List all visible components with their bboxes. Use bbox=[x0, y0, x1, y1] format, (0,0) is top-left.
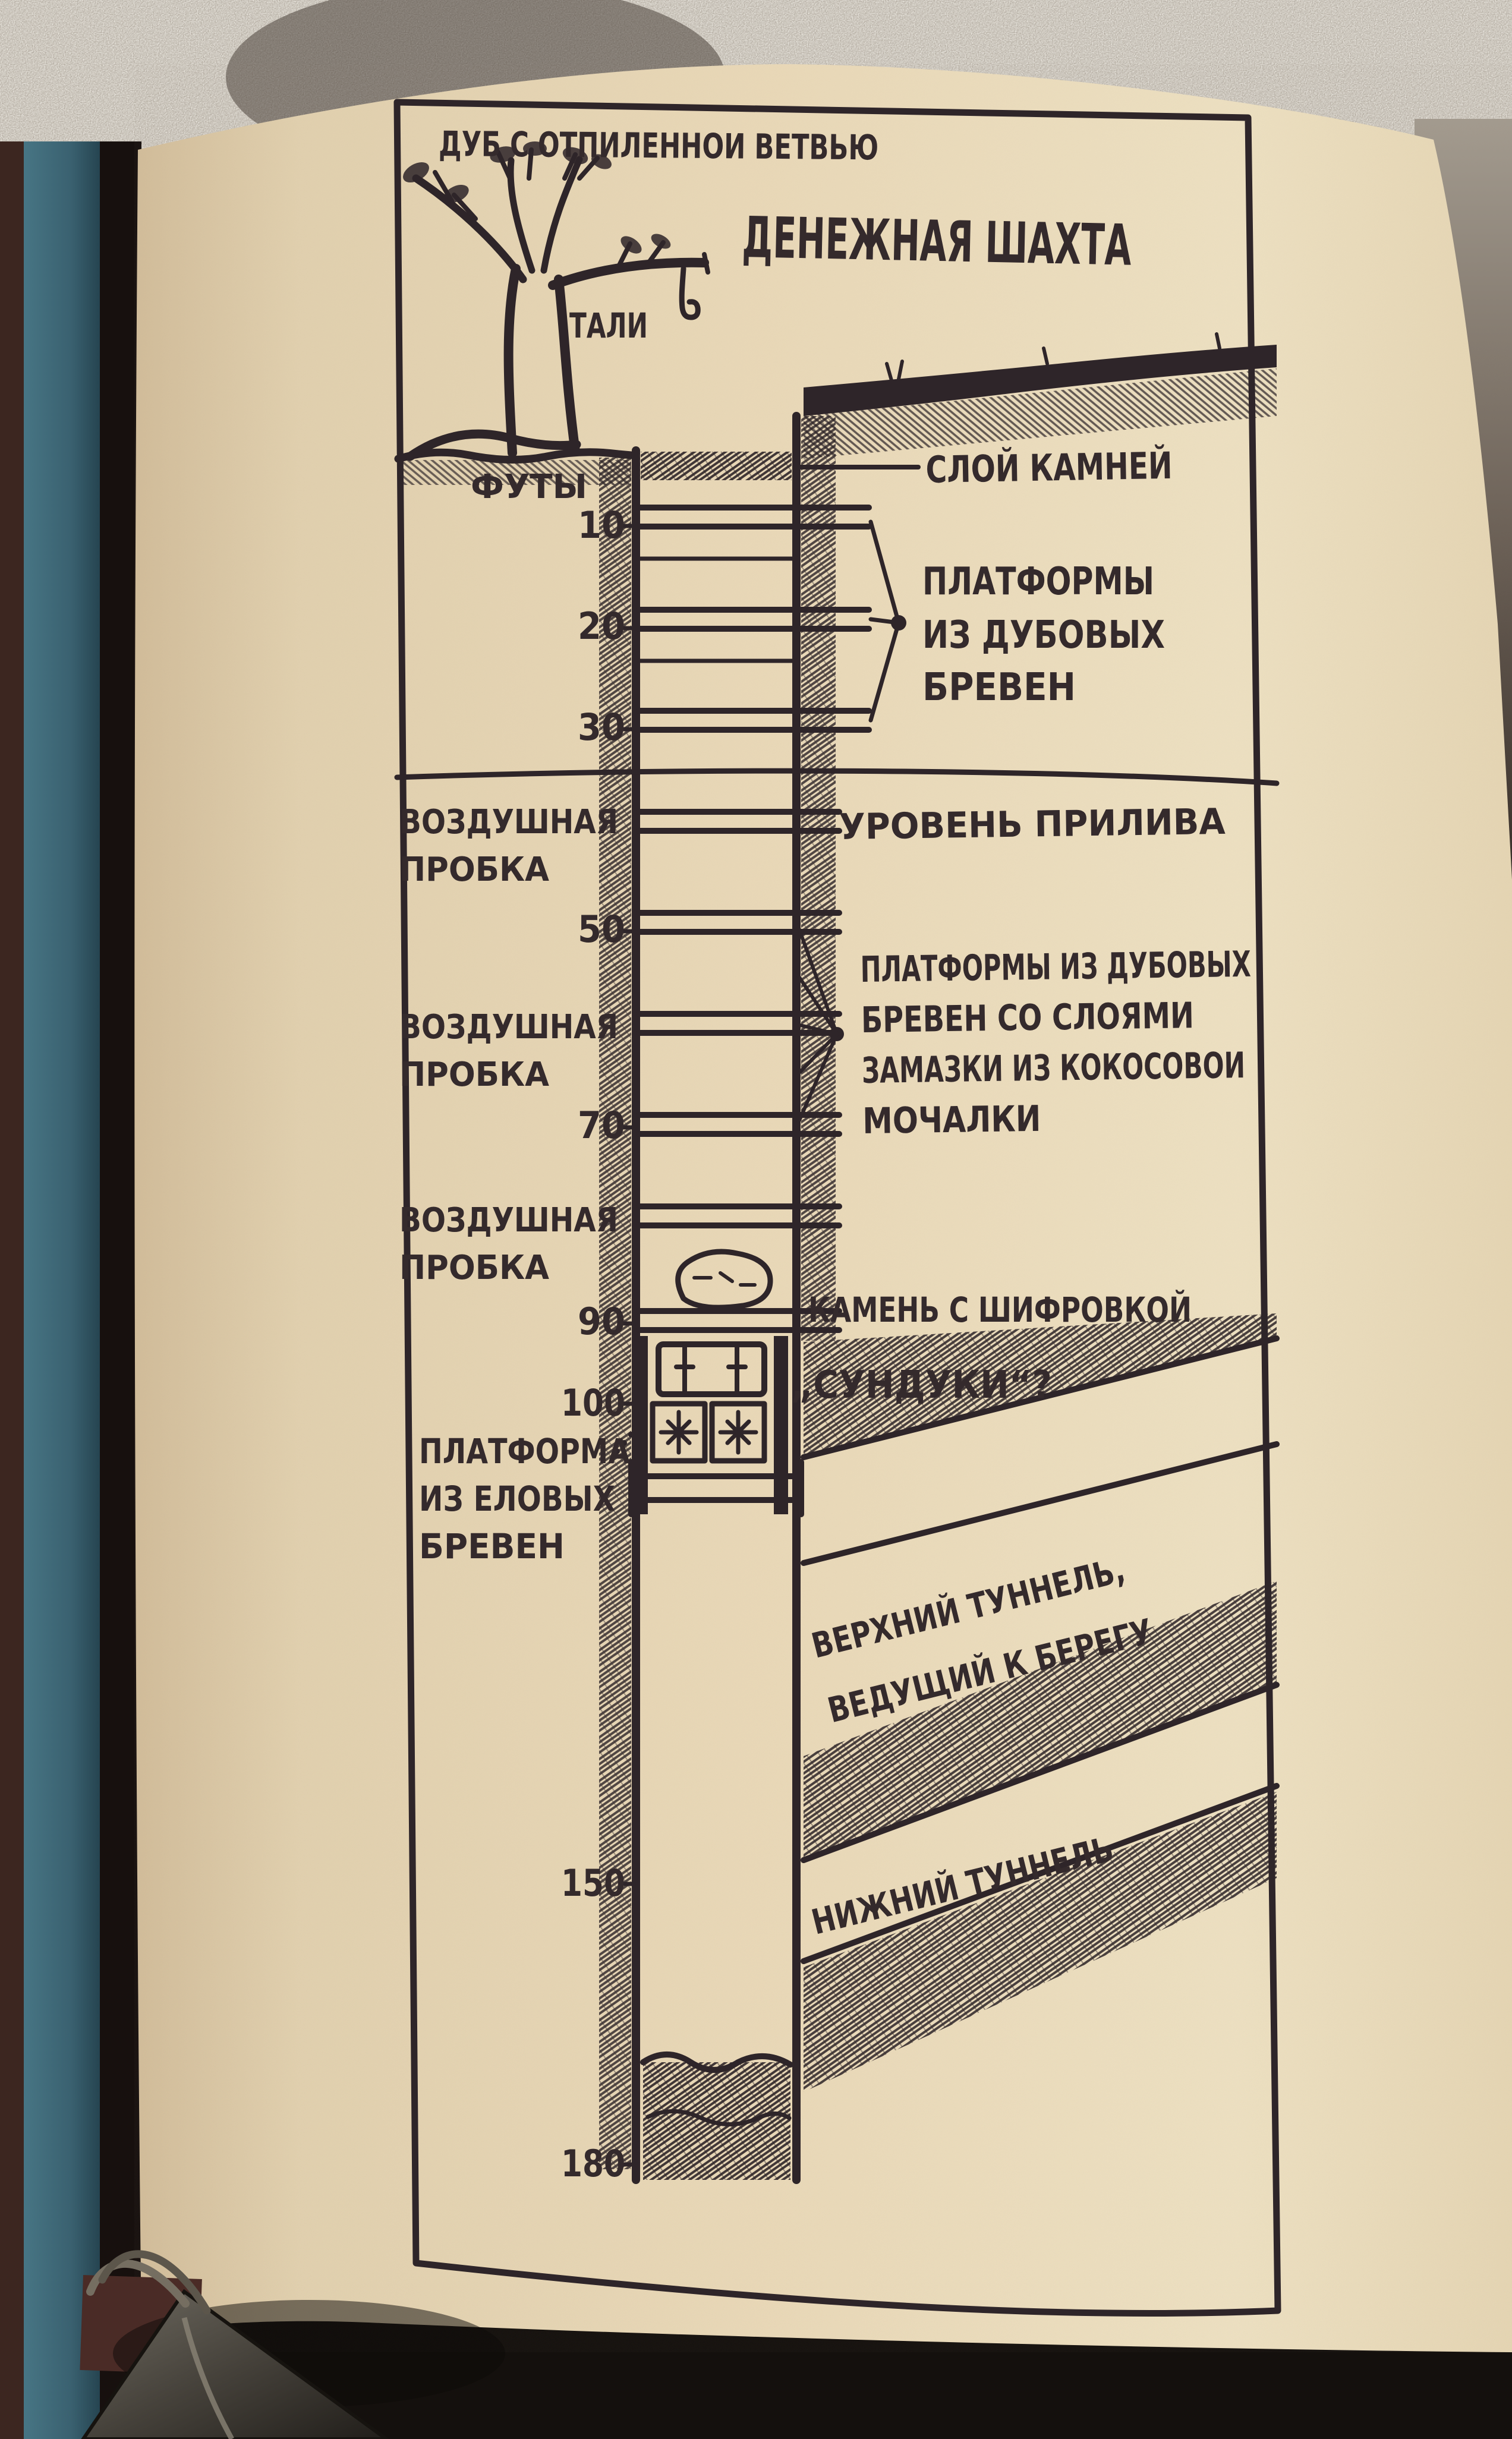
tide-level-label: УРОВЕНЬ ПРИЛИВА bbox=[839, 801, 1226, 848]
spruce-line3: БРЕВЕН bbox=[419, 1526, 565, 1567]
shaft-right-hatch bbox=[801, 416, 836, 1341]
depth-20: 20 bbox=[578, 604, 625, 648]
tree-label: ДУБ С ОТПИЛЕННОИ ВЕТВЬЮ bbox=[439, 124, 879, 168]
photo-of-book-page: ДУБ С ОТПИЛЕННОИ ВЕТВЬЮ ДЕНЕЖНАЯ ШАХТА Т… bbox=[0, 0, 1512, 2439]
depth-50: 50 bbox=[578, 907, 625, 951]
scene-svg: ДУБ С ОТПИЛЕННОИ ВЕТВЬЮ ДЕНЕЖНАЯ ШАХТА Т… bbox=[0, 0, 1512, 2439]
putty-line2: БРЕВЕН СО СЛОЯМИ bbox=[861, 995, 1194, 1041]
depth-10: 10 bbox=[578, 503, 625, 547]
depth-180: 180 bbox=[561, 2142, 625, 2185]
spruce-line2: ИЗ ЕЛОВЫХ bbox=[419, 1479, 615, 1519]
oak-platforms-line3: БРЕВЕН bbox=[922, 666, 1076, 710]
cover-teal-strip bbox=[24, 141, 102, 2439]
oak-platforms-line1: ПЛАТФОРМЫ bbox=[922, 560, 1154, 604]
feet-label: ФУТЫ bbox=[471, 468, 587, 506]
air-pocket-3-line1: ВОЗДУШНАЯ bbox=[399, 1201, 618, 1240]
stone-layer-band bbox=[641, 452, 792, 480]
cipher-stone-label: КАМЕНЬ С ШИФРОВКОЙ bbox=[808, 1289, 1192, 1330]
chests-label: „СУНДУКИ“? bbox=[790, 1363, 1052, 1407]
depth-70: 70 bbox=[578, 1104, 625, 1147]
air-pocket-2-line2: ПРОБКА bbox=[399, 1055, 550, 1094]
depth-150: 150 bbox=[561, 1861, 625, 1905]
air-pocket-1-line1: ВОЗДУШНАЯ bbox=[399, 803, 618, 842]
oak-platforms-line2: ИЗ ДУБОВЫХ bbox=[922, 613, 1165, 657]
tackle-label: ТАЛИ bbox=[569, 305, 648, 346]
air-pocket-3-line2: ПРОБКА bbox=[399, 1249, 550, 1287]
bottom-rubble bbox=[643, 2054, 790, 2180]
stone-layer-label: СЛОЙ КАМНЕЙ bbox=[925, 444, 1173, 491]
putty-line4: МОЧАЛКИ bbox=[862, 1098, 1041, 1142]
spruce-line1: ПЛАТФОРМА bbox=[419, 1431, 630, 1471]
diagram-title: ДЕНЕЖНАЯ ШАХТА bbox=[742, 205, 1132, 279]
air-pocket-2-line1: ВОЗДУШНАЯ bbox=[399, 1008, 618, 1047]
air-pocket-1-line2: ПРОБКА bbox=[399, 850, 550, 889]
putty-line1: ПЛАТФОРМЫ ИЗ ДУБОВЫХ bbox=[860, 944, 1251, 991]
depth-30: 30 bbox=[578, 705, 625, 749]
depth-100: 100 bbox=[561, 1381, 625, 1425]
putty-line3: ЗАМАЗКИ ИЗ КОКОСОВОИ bbox=[862, 1045, 1246, 1092]
depth-90: 90 bbox=[578, 1300, 625, 1343]
